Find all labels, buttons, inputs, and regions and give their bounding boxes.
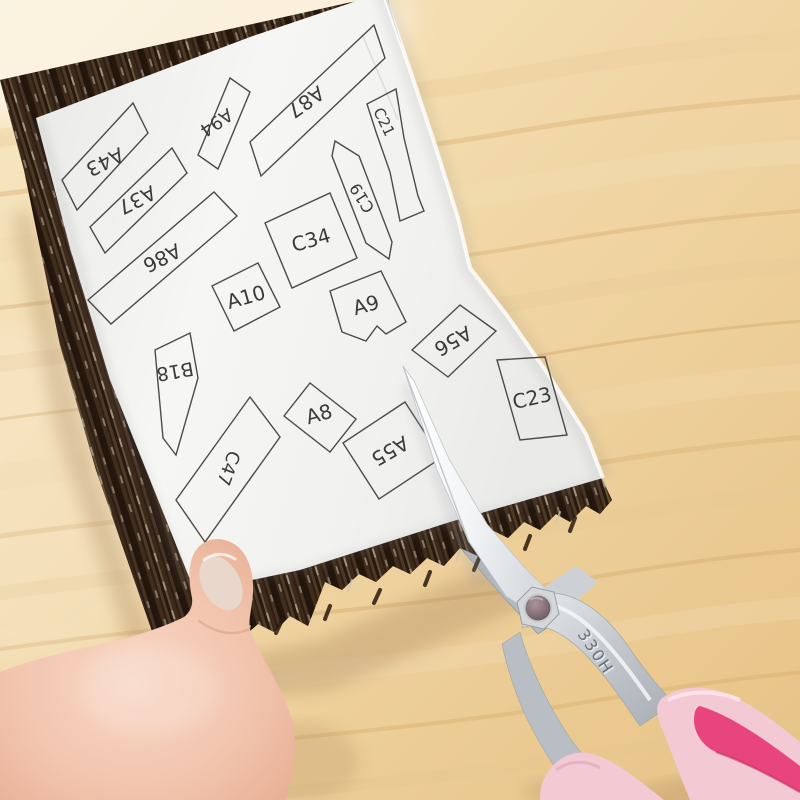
photo-scene: A43A37A86A94A87C21C19C34A10A9B18A8C47A55… (0, 0, 800, 800)
